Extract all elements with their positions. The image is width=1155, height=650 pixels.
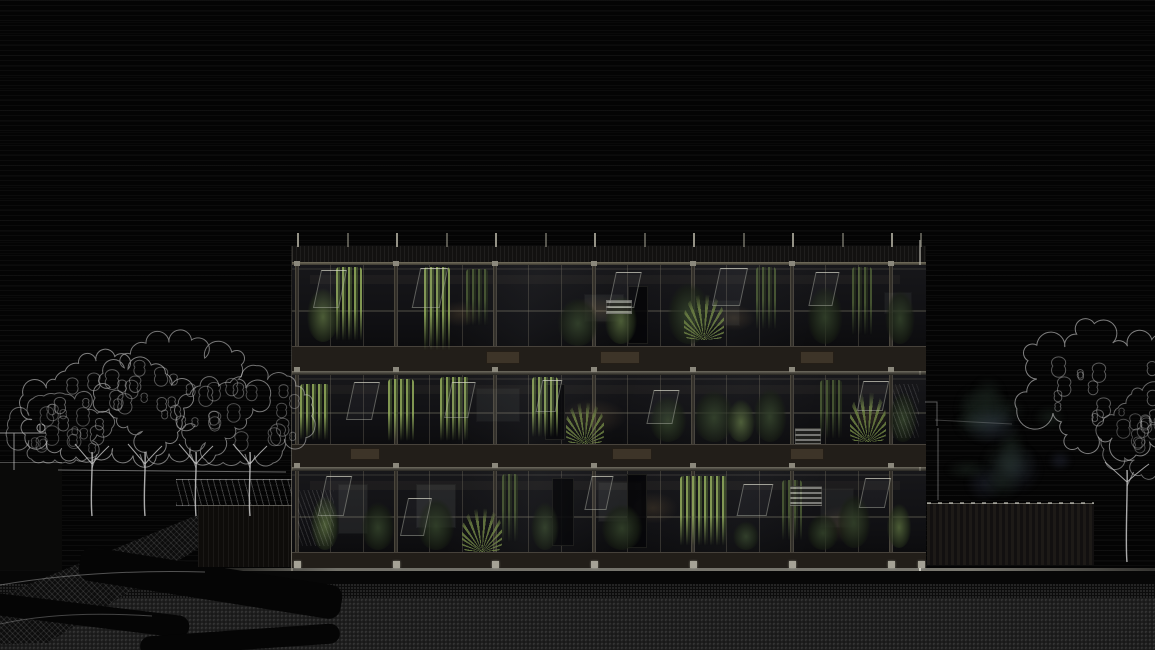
slab-bracket (888, 367, 894, 372)
slab-bracket (591, 367, 597, 372)
spandrel-panel (790, 448, 824, 460)
vine-bright (680, 476, 728, 548)
vine (852, 267, 872, 339)
vine (756, 267, 776, 333)
spandrel-panel (612, 448, 652, 460)
vine-bright (388, 379, 414, 443)
vine (466, 269, 488, 329)
interior-wall-panel (476, 388, 520, 422)
parapet-post (693, 233, 695, 247)
slab-bracket (294, 463, 300, 468)
mullion (363, 265, 364, 346)
column (295, 375, 299, 444)
head-rail (292, 268, 926, 270)
rail-bracket (591, 261, 597, 266)
ceiling-light-band (310, 275, 900, 284)
parapet-post (396, 233, 398, 247)
rail-bracket (492, 261, 498, 266)
roof-fascia (292, 246, 926, 263)
vine (820, 380, 842, 442)
dark-tree-foliage (971, 430, 1046, 497)
window-blinds (790, 486, 822, 506)
slab-bracket (690, 463, 696, 468)
foliage-dark (600, 502, 644, 550)
column-foot (918, 561, 925, 568)
column-foot (789, 561, 796, 568)
parapet-post (891, 233, 893, 247)
mullion (330, 375, 331, 444)
column (394, 265, 398, 346)
parapet-post (347, 233, 349, 247)
column-foot (492, 561, 499, 568)
spandrel-band (292, 552, 926, 568)
parapet-post (920, 233, 922, 247)
rail-bracket (789, 261, 795, 266)
spandrel-panel (350, 448, 380, 460)
mullion (660, 265, 661, 346)
spandrel-panel (486, 351, 520, 364)
column (790, 375, 794, 444)
window-blinds (606, 300, 632, 314)
column (394, 471, 398, 552)
slab-bracket (789, 463, 795, 468)
spandrel-panel (600, 351, 640, 364)
column-foot (591, 561, 598, 568)
foliage-dark (732, 520, 760, 550)
parapet-post (792, 233, 794, 247)
slab-bracket (393, 367, 399, 372)
rail-bracket (888, 261, 894, 266)
mullion (528, 265, 529, 346)
window-blinds (795, 428, 821, 444)
slab-bracket (492, 463, 498, 468)
parapet-post (545, 233, 547, 247)
slab-bracket (888, 463, 894, 468)
palm-plant (566, 402, 604, 444)
glass-reflection (298, 490, 334, 546)
rail-bracket (294, 261, 300, 266)
slab-bracket (690, 367, 696, 372)
parapet-post (446, 233, 448, 247)
parapet-post (644, 233, 646, 247)
column (493, 265, 497, 346)
rail-bracket (690, 261, 696, 266)
vine (502, 474, 518, 546)
spandrel-band (292, 444, 926, 467)
parapet-post (297, 233, 299, 247)
slab-bracket (492, 367, 498, 372)
foliage-dark (752, 386, 788, 442)
foliage-mid (886, 502, 912, 548)
dark-tree-foliage (965, 369, 1010, 423)
column (790, 265, 794, 346)
mullion (528, 375, 529, 444)
slab-bracket (294, 367, 300, 372)
parapet-post (842, 233, 844, 247)
slab-bracket (393, 463, 399, 468)
column (295, 265, 299, 346)
column-foot (393, 561, 400, 568)
slab-bracket (789, 367, 795, 372)
column-foot (294, 561, 301, 568)
foliage-dark (360, 500, 396, 550)
right-fence (927, 503, 1094, 565)
column-foot (690, 561, 697, 568)
palm-plant (462, 508, 502, 552)
glass-reflection (893, 384, 919, 438)
dark-tree-foliage (1028, 401, 1070, 433)
parapet-post (743, 233, 745, 247)
parapet-post (594, 233, 596, 247)
left-boundary-wall (0, 462, 62, 570)
architectural-night-render (0, 0, 1155, 650)
rail-bracket (393, 261, 399, 266)
foliage-dark (556, 296, 600, 346)
vine-bright (300, 384, 330, 442)
spandrel-panel (800, 351, 834, 364)
foliage-dark (884, 288, 916, 344)
slab-bracket (591, 463, 597, 468)
parapet-post (495, 233, 497, 247)
foliage-dark (806, 512, 840, 550)
mullion (528, 471, 529, 552)
building-elevation (292, 231, 926, 571)
mullion (429, 375, 430, 444)
foliage-dark (530, 500, 560, 550)
column-foot (888, 561, 895, 568)
